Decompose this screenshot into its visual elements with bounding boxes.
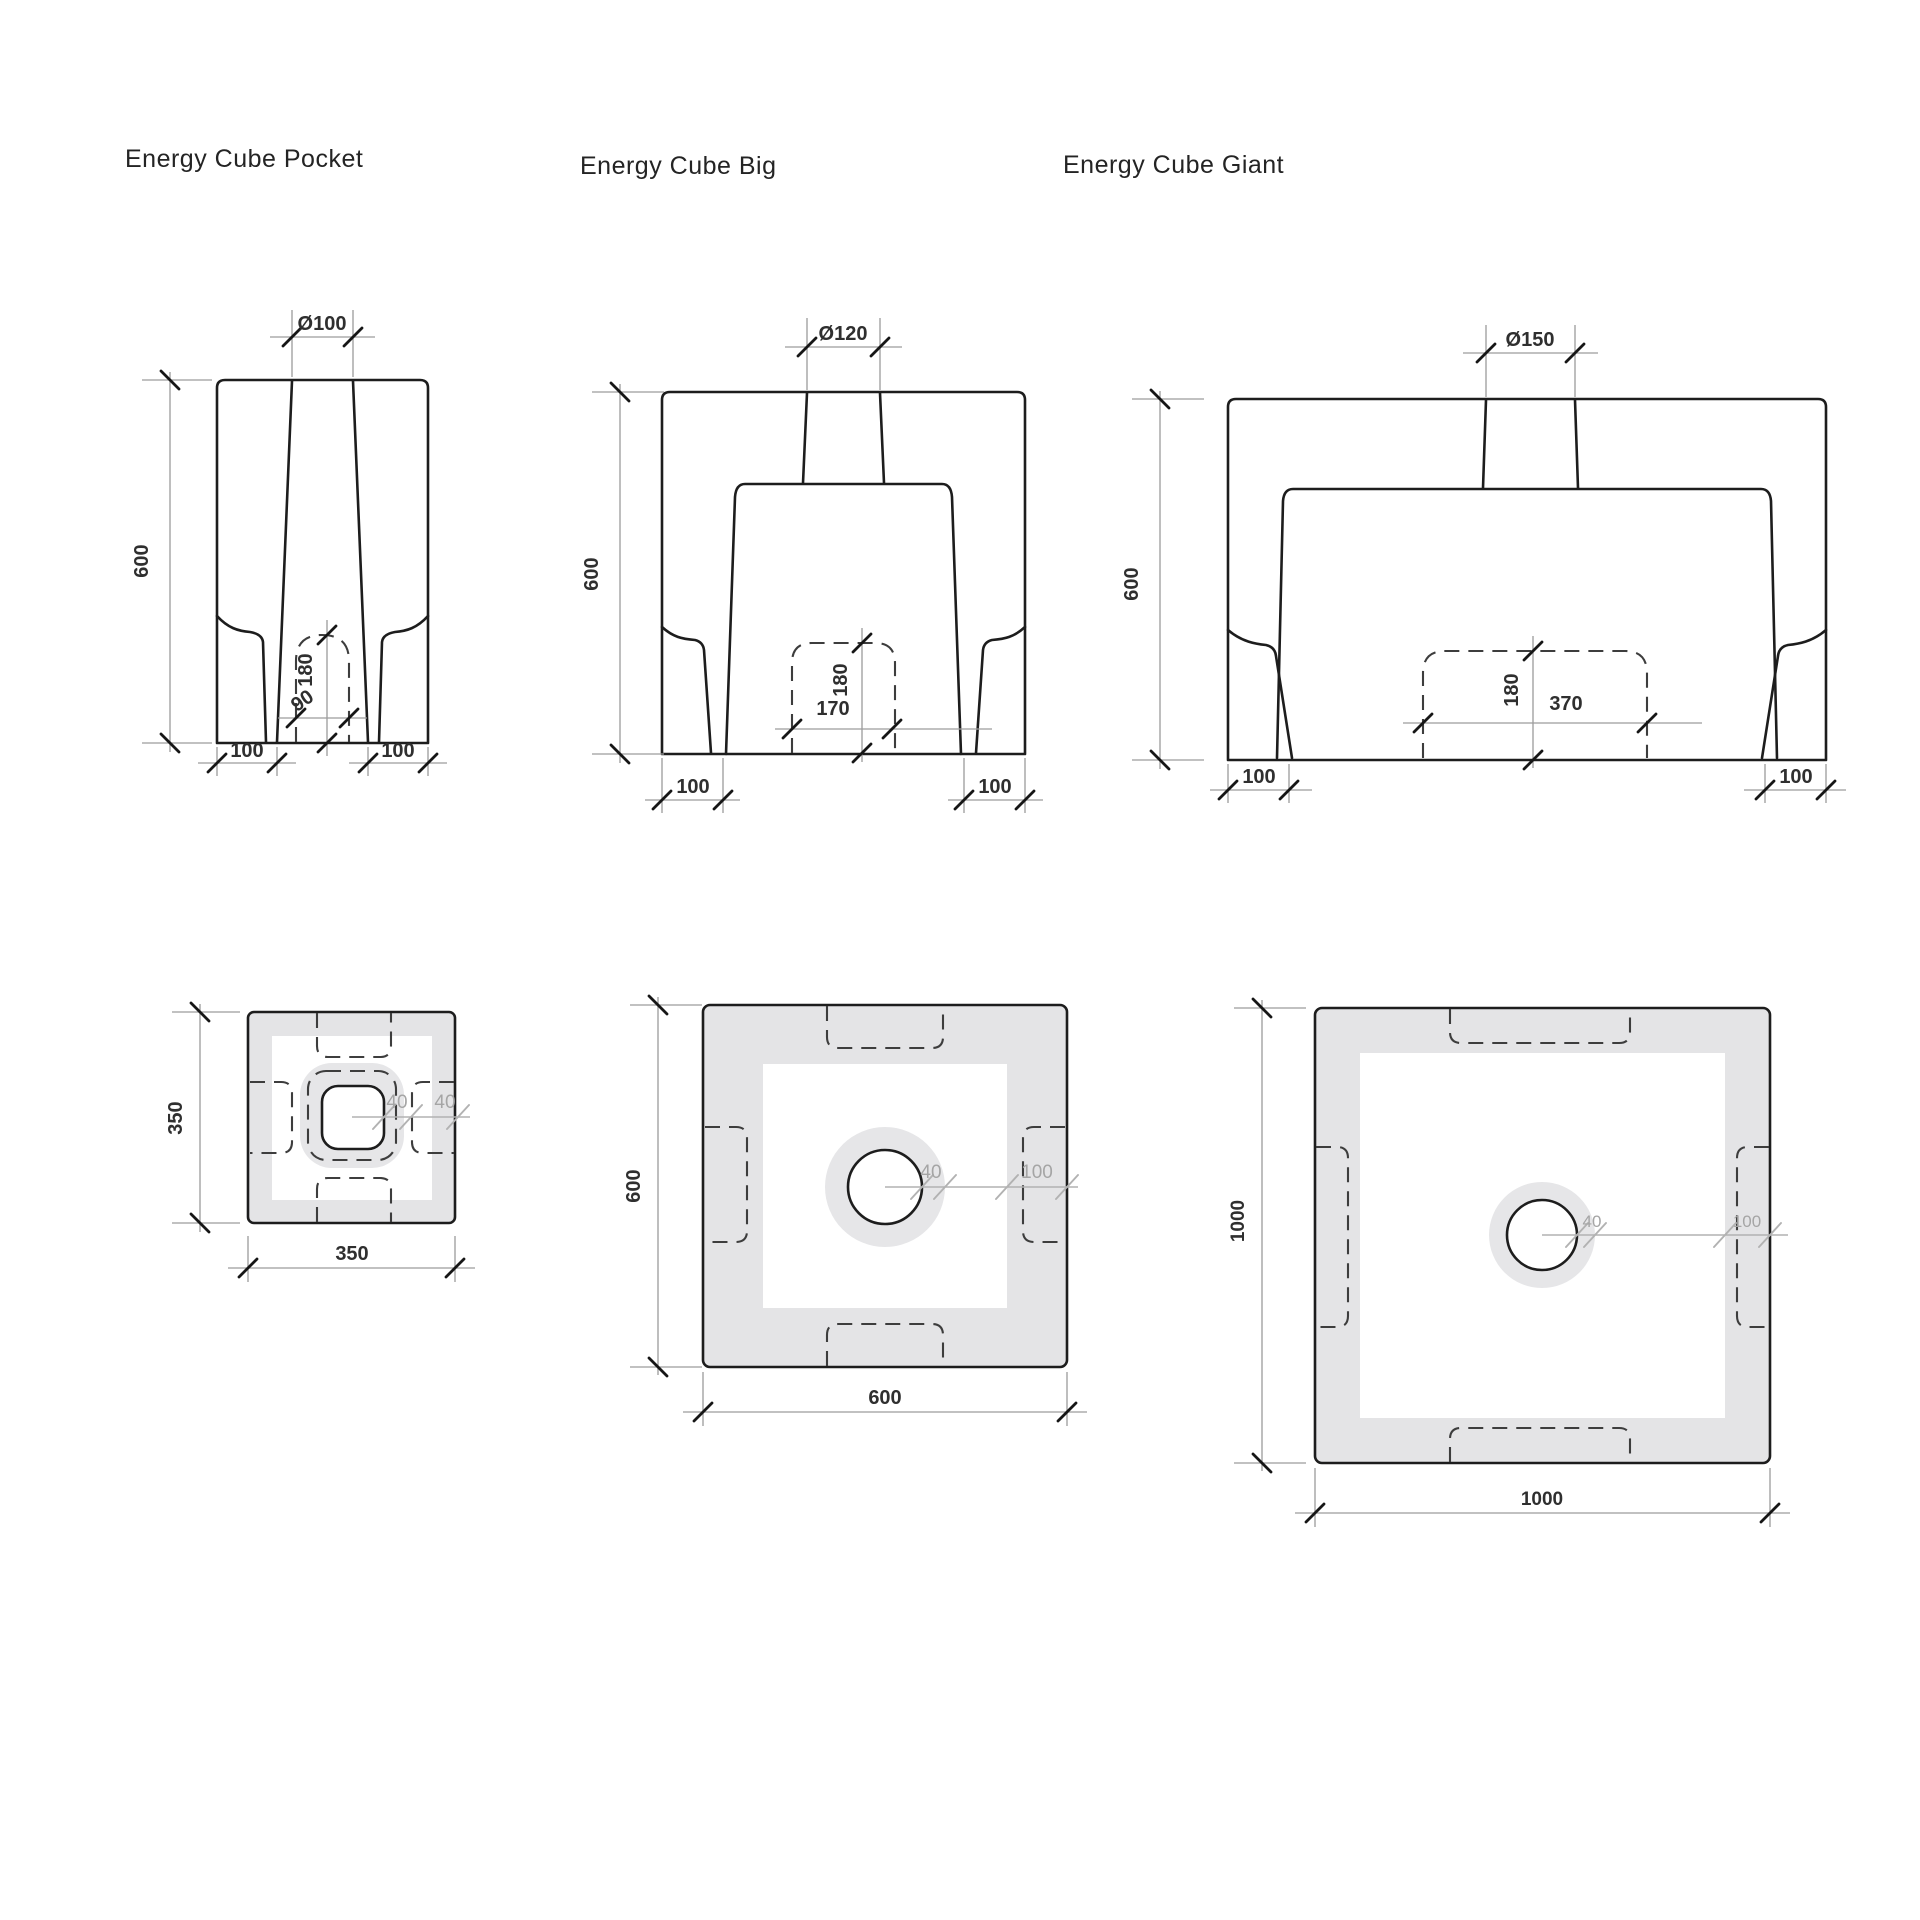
- pocket-funnel-left-line: [277, 381, 292, 742]
- dim-label-cavity-width: 90: [287, 686, 318, 717]
- big-elevation: Ø120 600 180 170 100 100: [581, 318, 1043, 813]
- dim-label-side-vertical: 1000: [1228, 1200, 1249, 1242]
- pocket-elevation: Ø100 600 180 90 100 100: [131, 310, 447, 776]
- dim-label-cavity-width: 170: [816, 698, 849, 720]
- dim-label-height: 600: [581, 557, 603, 590]
- big-foot-step-left: [662, 627, 711, 753]
- giant-elevation: Ø150 600 180 370 100 100: [1121, 325, 1846, 803]
- pocket-dim-top-diameter: Ø100: [270, 310, 375, 377]
- dim-label-side-vertical: 350: [165, 1101, 187, 1134]
- giant-plan-dim-horizontal: 1000: [1295, 1468, 1790, 1527]
- dim-label-side-horizontal: 600: [868, 1387, 901, 1409]
- big-plan-dim-horizontal: 600: [683, 1372, 1087, 1426]
- giant-dim-foot-right: 100: [1744, 764, 1846, 803]
- big-dim-cavity-height: 180: [830, 628, 871, 762]
- dim-label-hole-ring: 40: [920, 1162, 941, 1183]
- big-funnel-right-line: [880, 393, 884, 483]
- technical-drawing-sheet: Energy Cube Pocket Energy Cube Big Energ…: [0, 0, 1920, 1920]
- big-funnel-left-line: [803, 393, 807, 483]
- pocket-plan: 350 350 40 40: [165, 1003, 475, 1282]
- giant-dim-top-diameter: Ø150: [1463, 325, 1598, 397]
- pocket-funnel-right-line: [353, 381, 368, 742]
- pocket-dim-foot-left: 100: [198, 740, 296, 776]
- dim-label-diameter: Ø120: [819, 323, 868, 345]
- big-plan-dim-vertical: 600: [623, 996, 702, 1376]
- pocket-plan-dim-vertical: 350: [165, 1003, 240, 1232]
- dim-label-offset-outer: 40: [434, 1092, 455, 1113]
- giant-dim-foot-left: 100: [1210, 764, 1312, 803]
- title-giant: Energy Cube Giant: [1063, 151, 1284, 179]
- dim-label-diameter: Ø150: [1506, 329, 1555, 351]
- title-big: Energy Cube Big: [580, 152, 777, 180]
- dim-label-height: 600: [1121, 567, 1143, 600]
- dim-label-foot-right: 100: [381, 740, 414, 762]
- giant-dim-height: 600: [1121, 390, 1204, 769]
- dim-label-height: 600: [131, 544, 153, 577]
- pocket-foot-step-left: [217, 616, 266, 742]
- giant-foot-step-right: [1762, 630, 1826, 758]
- dim-label-foot-left: 100: [1242, 766, 1275, 788]
- dim-label-cavity-width: 370: [1549, 693, 1582, 715]
- giant-dim-cavity-height: 180: [1501, 636, 1542, 769]
- dim-label-foot-right: 100: [978, 776, 1011, 798]
- pocket-plan-dim-horizontal: 350: [228, 1236, 475, 1282]
- dim-label-cavity-height: 180: [295, 653, 317, 686]
- dim-label-hole-ring: 40: [1583, 1212, 1602, 1231]
- giant-hidden-cavity: [1423, 651, 1647, 758]
- big-dim-top-diameter: Ø120: [785, 318, 902, 390]
- dim-label-foot-right: 100: [1779, 766, 1812, 788]
- dim-label-side-horizontal: 1000: [1521, 1489, 1563, 1510]
- giant-plan: 1000 1000 40 100: [1228, 999, 1790, 1527]
- giant-plan-dim-vertical: 1000: [1228, 999, 1306, 1472]
- dim-label-cavity-height: 180: [830, 663, 852, 696]
- dim-label-wall-thickness: 100: [1021, 1162, 1053, 1183]
- drawing-canvas: Energy Cube Pocket Energy Cube Big Energ…: [0, 0, 1920, 1920]
- giant-inner-arch: [1277, 489, 1777, 758]
- giant-funnel-left-line: [1483, 400, 1486, 488]
- big-foot-step-right: [976, 627, 1025, 753]
- pocket-dim-height: 600: [131, 371, 212, 752]
- giant-funnel-right-line: [1575, 400, 1578, 488]
- pocket-dim-foot-right: 100: [349, 740, 447, 776]
- dim-label-wall-thickness: 100: [1733, 1212, 1761, 1231]
- dim-label-diameter: Ø100: [298, 313, 347, 335]
- giant-elevation-outline: [1228, 399, 1826, 760]
- big-plan: 600 600 40 100: [623, 996, 1087, 1426]
- dim-label-side-horizontal: 350: [335, 1243, 368, 1265]
- pocket-foot-step-right: [379, 616, 428, 742]
- dim-label-foot-left: 100: [230, 740, 263, 762]
- dim-label-side-vertical: 600: [623, 1169, 645, 1202]
- giant-dim-cavity-width: 370: [1403, 693, 1702, 732]
- giant-foot-step-left: [1228, 630, 1292, 758]
- pocket-elevation-outline: [217, 380, 428, 743]
- title-pocket: Energy Cube Pocket: [125, 145, 363, 173]
- dim-label-foot-left: 100: [676, 776, 709, 798]
- big-dim-foot-left: 100: [645, 758, 740, 813]
- dim-label-cavity-height: 180: [1501, 673, 1523, 706]
- dim-label-offset-inner: 40: [386, 1092, 407, 1113]
- big-dim-height: 600: [581, 383, 664, 763]
- pocket-dim-cavity-width: 90: [278, 686, 367, 727]
- big-dim-foot-right: 100: [948, 758, 1043, 813]
